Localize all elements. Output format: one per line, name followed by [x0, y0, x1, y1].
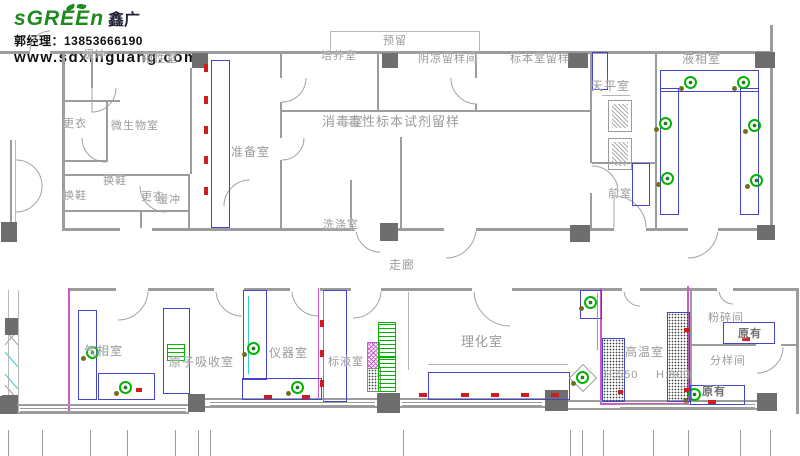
faucet-icon	[119, 381, 132, 394]
column	[757, 393, 777, 411]
sink-marker	[491, 393, 499, 397]
sink-marker	[320, 350, 324, 357]
grid-tick	[570, 430, 571, 456]
grid-tick	[582, 430, 583, 456]
room-label: 仪器室	[269, 347, 308, 359]
door-opening	[622, 287, 640, 292]
room-label: 理化室	[461, 335, 503, 348]
column	[570, 225, 590, 242]
lab-bench	[242, 378, 322, 400]
logo-text: sGREEn	[14, 7, 104, 30]
wall	[479, 31, 480, 52]
room-label: 天平室	[591, 80, 630, 92]
sink-marker	[204, 126, 208, 134]
column	[380, 223, 398, 241]
wall	[475, 104, 477, 110]
grid-tick	[603, 430, 604, 456]
room-label: 原有	[702, 387, 726, 398]
room-label: 标本室留样	[510, 54, 570, 65]
grid-tick	[770, 430, 771, 456]
sink-marker	[320, 320, 324, 327]
lab-bench	[632, 163, 650, 206]
sink-marker	[684, 328, 689, 332]
equipment-icon	[378, 357, 396, 392]
dimension-line	[408, 292, 409, 370]
wall-magenta	[68, 288, 70, 412]
room-label: 液相室	[682, 53, 721, 65]
sink-marker	[204, 187, 208, 195]
room-label: H:550	[604, 370, 638, 381]
room-label: H:800	[656, 370, 690, 381]
wall	[8, 290, 9, 412]
sink-marker	[204, 156, 208, 164]
service-line	[597, 293, 598, 350]
room-label: 微生物室	[111, 121, 159, 132]
grid-tick	[688, 430, 689, 456]
faucet-icon	[247, 342, 260, 355]
faucet-icon	[684, 76, 697, 89]
sink-marker	[521, 393, 529, 397]
faucet-icon	[661, 172, 674, 185]
grid-tick	[175, 430, 176, 456]
sink-marker	[708, 400, 716, 404]
sink-marker	[551, 393, 559, 397]
lab-bench	[428, 372, 570, 400]
faucet-icon	[748, 119, 761, 132]
door-opening	[444, 227, 476, 232]
wall	[62, 210, 190, 212]
lab-bench	[211, 60, 230, 228]
door-opening	[120, 227, 152, 232]
sink-marker	[461, 393, 469, 397]
room-label: 阳性室	[142, 54, 178, 65]
room-label: 培养室	[321, 51, 357, 62]
room-label: 洗涤室	[323, 220, 359, 231]
faucet-icon	[576, 371, 589, 384]
service-line	[248, 296, 249, 374]
wall	[15, 140, 16, 224]
column	[5, 318, 18, 335]
grid-tick	[127, 430, 128, 456]
wall	[568, 408, 758, 410]
sink-marker	[204, 64, 208, 72]
faucet-icon	[659, 117, 672, 130]
room-label: 更衣	[63, 119, 87, 130]
grid-tick	[740, 430, 741, 456]
logo-cn-text: 鑫广	[108, 12, 140, 29]
wall	[140, 212, 142, 228]
wall	[190, 68, 192, 174]
wall	[590, 193, 592, 228]
wall	[280, 102, 282, 138]
lab-bench	[660, 88, 679, 215]
grid-tick	[90, 430, 91, 456]
door-opening	[116, 287, 148, 292]
room-label: 换鞋	[103, 176, 127, 187]
window	[20, 405, 186, 412]
equipment-icon	[378, 322, 396, 357]
column	[568, 53, 588, 68]
wall	[10, 140, 12, 224]
room-label: 准备室	[231, 146, 270, 158]
lab-bench	[323, 290, 347, 402]
wall	[330, 31, 480, 32]
column	[757, 225, 775, 240]
wall	[282, 110, 592, 112]
room-label: 原有	[738, 329, 762, 340]
sink-marker	[320, 380, 324, 387]
column	[1, 222, 17, 242]
sink-marker	[618, 390, 623, 394]
wall	[400, 137, 402, 228]
dimension-line	[602, 95, 630, 96]
wall	[655, 51, 657, 228]
wall	[62, 160, 108, 162]
wall	[188, 174, 190, 228]
door-opening	[688, 227, 718, 232]
door-opening	[472, 287, 512, 292]
door-opening	[614, 227, 646, 232]
room-label: 预留	[383, 36, 407, 47]
wall	[62, 228, 772, 231]
sink-marker	[204, 96, 208, 104]
room-label: 换鞋	[63, 191, 87, 202]
logo: sGREEn鑫广	[14, 6, 204, 30]
faucet-icon	[737, 76, 750, 89]
dimension-line	[428, 364, 568, 365]
window	[402, 399, 542, 406]
door-opening	[214, 287, 244, 292]
balance-table	[608, 138, 632, 170]
door-opening	[290, 287, 320, 292]
wall	[330, 31, 331, 52]
room-label: 阴凉留样间	[418, 54, 478, 65]
sink-marker	[136, 388, 142, 392]
column	[0, 396, 17, 414]
room-label: 缓冲	[83, 50, 107, 61]
room-label: 标液室	[328, 357, 364, 368]
room-label: 缓冲	[157, 195, 181, 206]
contact-phone: 郭经理：13853666190	[14, 32, 204, 49]
grid-tick	[42, 430, 43, 456]
window	[210, 399, 375, 406]
wall	[62, 100, 120, 102]
room-label: 气相室	[84, 345, 123, 357]
lab-bench	[243, 290, 267, 380]
wall	[796, 288, 799, 414]
room-label: 高温室	[625, 346, 664, 358]
wall	[205, 406, 545, 408]
faucet-icon	[584, 296, 597, 309]
wall	[106, 100, 108, 162]
room-label: 前室	[608, 189, 632, 200]
room-label: 原子吸收室	[169, 356, 234, 368]
room-label: 毒性标本试剂留样	[348, 115, 460, 128]
wall	[62, 51, 65, 231]
wall	[18, 290, 19, 412]
grid-tick	[403, 430, 404, 456]
column	[377, 393, 400, 413]
door-opening	[351, 287, 381, 292]
sink-marker	[264, 395, 272, 399]
wall	[280, 160, 282, 228]
sink-marker	[419, 393, 427, 397]
balance-table	[608, 100, 632, 132]
column	[382, 53, 398, 68]
door-opening	[355, 227, 382, 232]
room-label: 分样间	[710, 356, 746, 367]
wall	[17, 412, 189, 414]
faucet-icon	[291, 381, 304, 394]
sink-marker	[302, 395, 310, 399]
wall	[280, 51, 282, 78]
grid-tick	[198, 430, 199, 456]
column	[188, 394, 205, 412]
floor-plan-canvas: sGREEn鑫广 郭经理：13853666190 www.sdxinguang.…	[0, 0, 800, 456]
lab-bench	[740, 88, 759, 215]
column	[755, 52, 775, 68]
door-opening	[717, 287, 733, 292]
grid-tick	[8, 430, 9, 456]
room-label: 粉碎间	[708, 313, 744, 324]
wall	[0, 51, 30, 54]
room-label: 走廊	[389, 259, 415, 271]
wall	[690, 344, 756, 346]
faucet-icon	[750, 174, 763, 187]
grid-tick	[653, 430, 654, 456]
grid-tick	[210, 430, 211, 456]
wall	[377, 51, 379, 110]
